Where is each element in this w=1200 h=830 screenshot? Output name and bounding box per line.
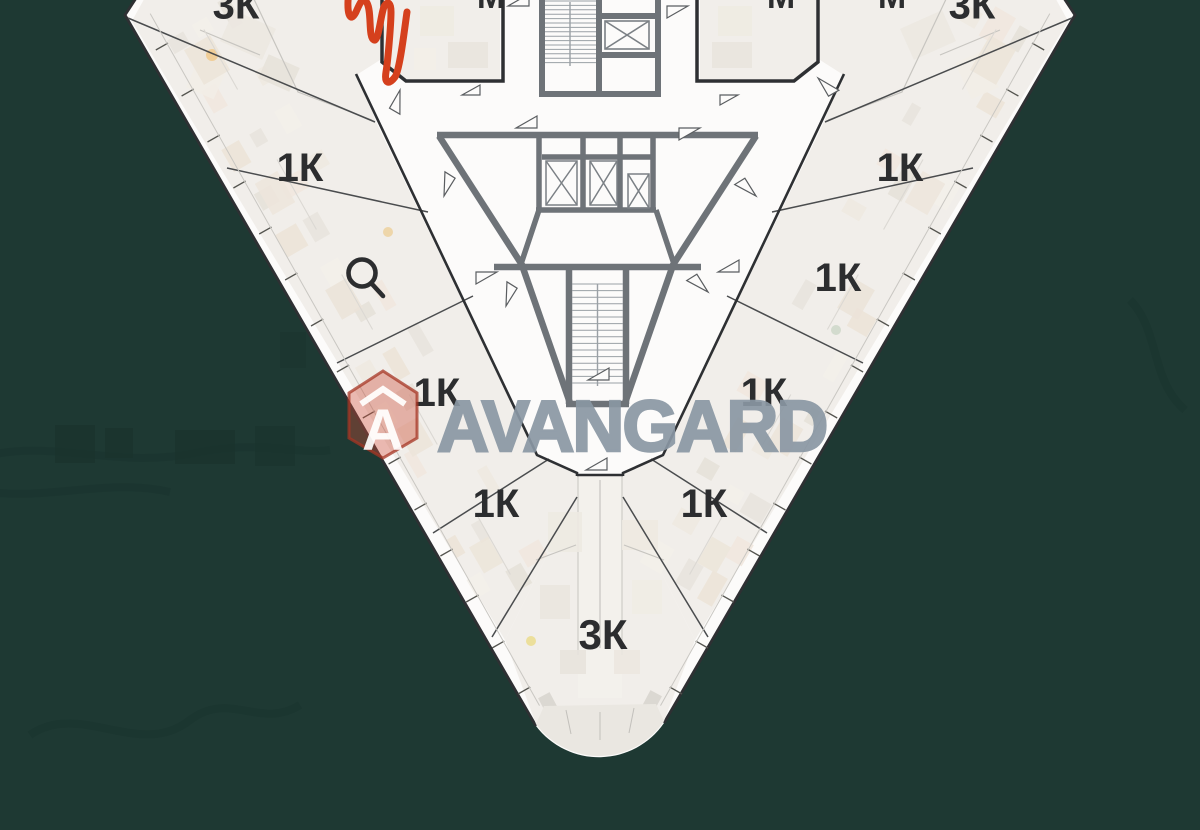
svg-text:3К: 3К <box>213 0 260 28</box>
svg-text:3К: 3К <box>949 0 996 28</box>
svg-text:1К: 1К <box>473 482 520 526</box>
svg-text:3К: 3К <box>579 611 628 658</box>
svg-text:М: М <box>767 0 795 16</box>
svg-text:AVANGARD: AVANGARD <box>437 387 826 467</box>
svg-text:М: М <box>477 0 505 16</box>
svg-text:1К: 1К <box>277 146 324 190</box>
svg-text:М: М <box>878 0 906 16</box>
svg-text:1К: 1К <box>681 482 728 526</box>
svg-text:1К: 1К <box>877 146 924 190</box>
svg-text:A: A <box>362 398 404 463</box>
svg-text:1К: 1К <box>815 256 862 300</box>
